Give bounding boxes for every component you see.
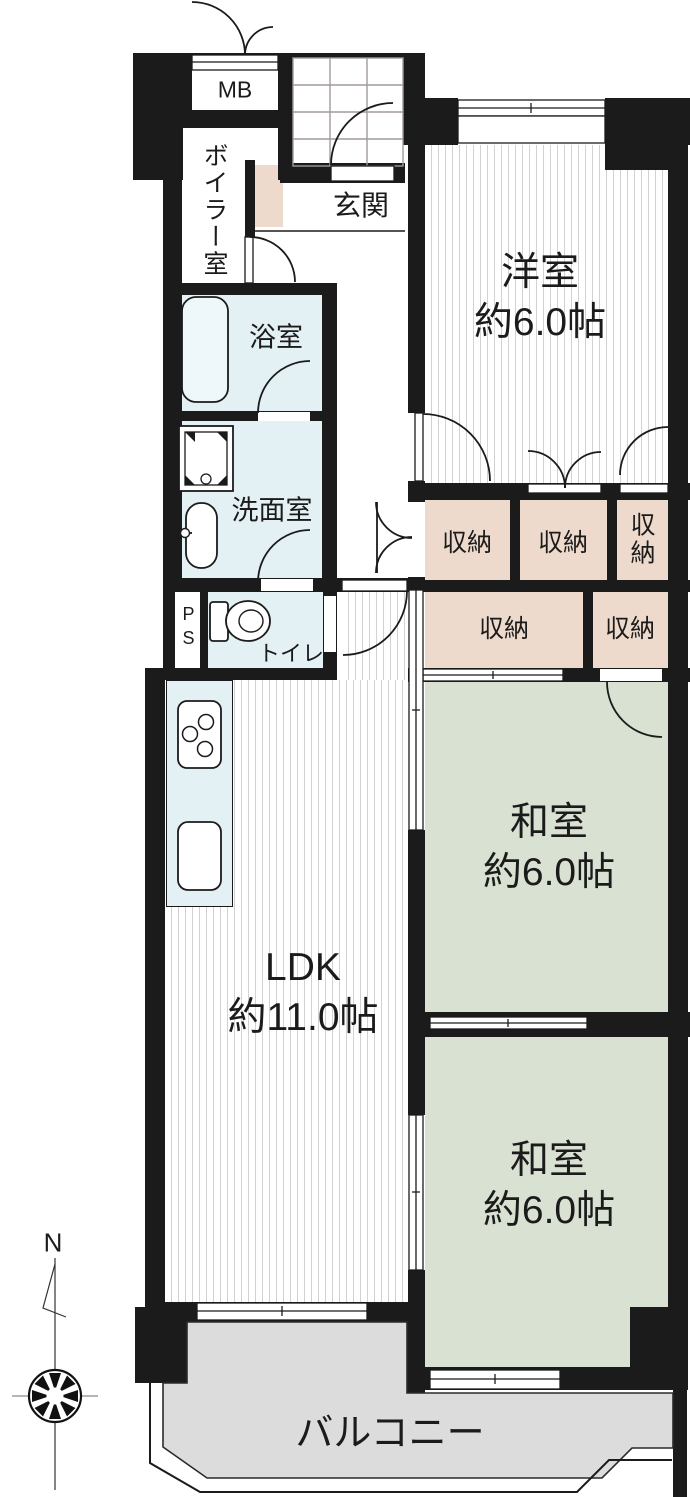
entrance-label: 玄関 [333,184,389,224]
compass-north-label: N [44,1228,63,1259]
japanese-room-1-name: 和室 [483,798,615,848]
boiler-door-leaf [245,237,253,283]
ldk-label: LDK 約11.0帖 [227,943,378,1043]
balcony-label: バルコニー [295,1402,484,1457]
boiler-room-label: ボイラー室 [196,143,232,278]
compass [12,1258,98,1490]
japanese-room-2-label: 和室 約6.0帖 [483,1136,615,1236]
western-room-label: 洋室 約6.0帖 [474,248,606,348]
closet5-door-gap [600,669,662,681]
washroom-label: 洗面室 [232,489,313,528]
closet3-door-sill [620,484,668,493]
western-room-door-arc [423,414,490,481]
porch-door-sill [331,166,394,181]
closet1-door-arc-1 [376,502,412,538]
western-room-size: 約6.0帖 [474,298,606,348]
sink-icon [178,503,217,568]
kitchen-sink-icon [178,822,221,890]
western-room-door-leaf [415,413,423,481]
washroom-door-gap [261,579,313,591]
mb-door-arc-1 [192,2,245,55]
bathroom-label: 浴室 [249,316,303,355]
toilet-door-gap [324,596,336,652]
western-room-name: 洋室 [474,248,606,298]
washing-machine-icon [179,426,233,491]
meter-box-label: MB [218,77,253,104]
closet-1-label: 収納 [442,523,492,559]
fixtures [178,297,270,890]
closet-4-label: 収納 [479,609,529,645]
ldk-size: 約11.0帖 [227,993,378,1043]
ldk-door-arc [343,591,407,655]
japanese1-door-arc [607,682,662,737]
floorplan-graphics [0,0,690,1497]
toilet-icon [210,601,270,641]
washroom-door-arc [258,530,310,582]
stove-icon [178,701,221,768]
bathroom-door-arc [258,361,310,413]
ldk-door-sill [342,580,407,591]
porch-grid [293,58,403,166]
japanese-room-1-label: 和室 約6.0帖 [483,798,615,898]
closet1-door-arc-2 [376,537,412,573]
mb-door-arc-2 [245,27,273,55]
western-room-window-sill [458,116,605,143]
ldk-name: LDK [227,943,378,993]
closet-2-label: 収納 [538,523,588,559]
bathtub-icon [182,297,228,402]
closet2-door-arc-1 [528,451,565,488]
japanese-room-1-size: 約6.0帖 [483,848,615,898]
bathroom-door-gap [258,412,310,421]
closet-3-label: 収納 [628,513,658,568]
floor-plan: MB ボイラー室 玄関 浴室 洗面室 PS トイレ 洋室 約6.0帖 和室 約6… [0,0,690,1497]
closet3-door-arc [620,427,668,475]
boiler-door-arc [250,237,295,282]
toilet-label: トイレ [258,636,324,668]
closet2-door-arc-2 [565,452,601,488]
closet-5-label: 収納 [605,609,655,645]
japanese-room-2-name: 和室 [483,1136,615,1186]
japanese-room-2-size: 約6.0帖 [483,1186,615,1236]
pipe-shaft-label: PS [178,604,199,652]
